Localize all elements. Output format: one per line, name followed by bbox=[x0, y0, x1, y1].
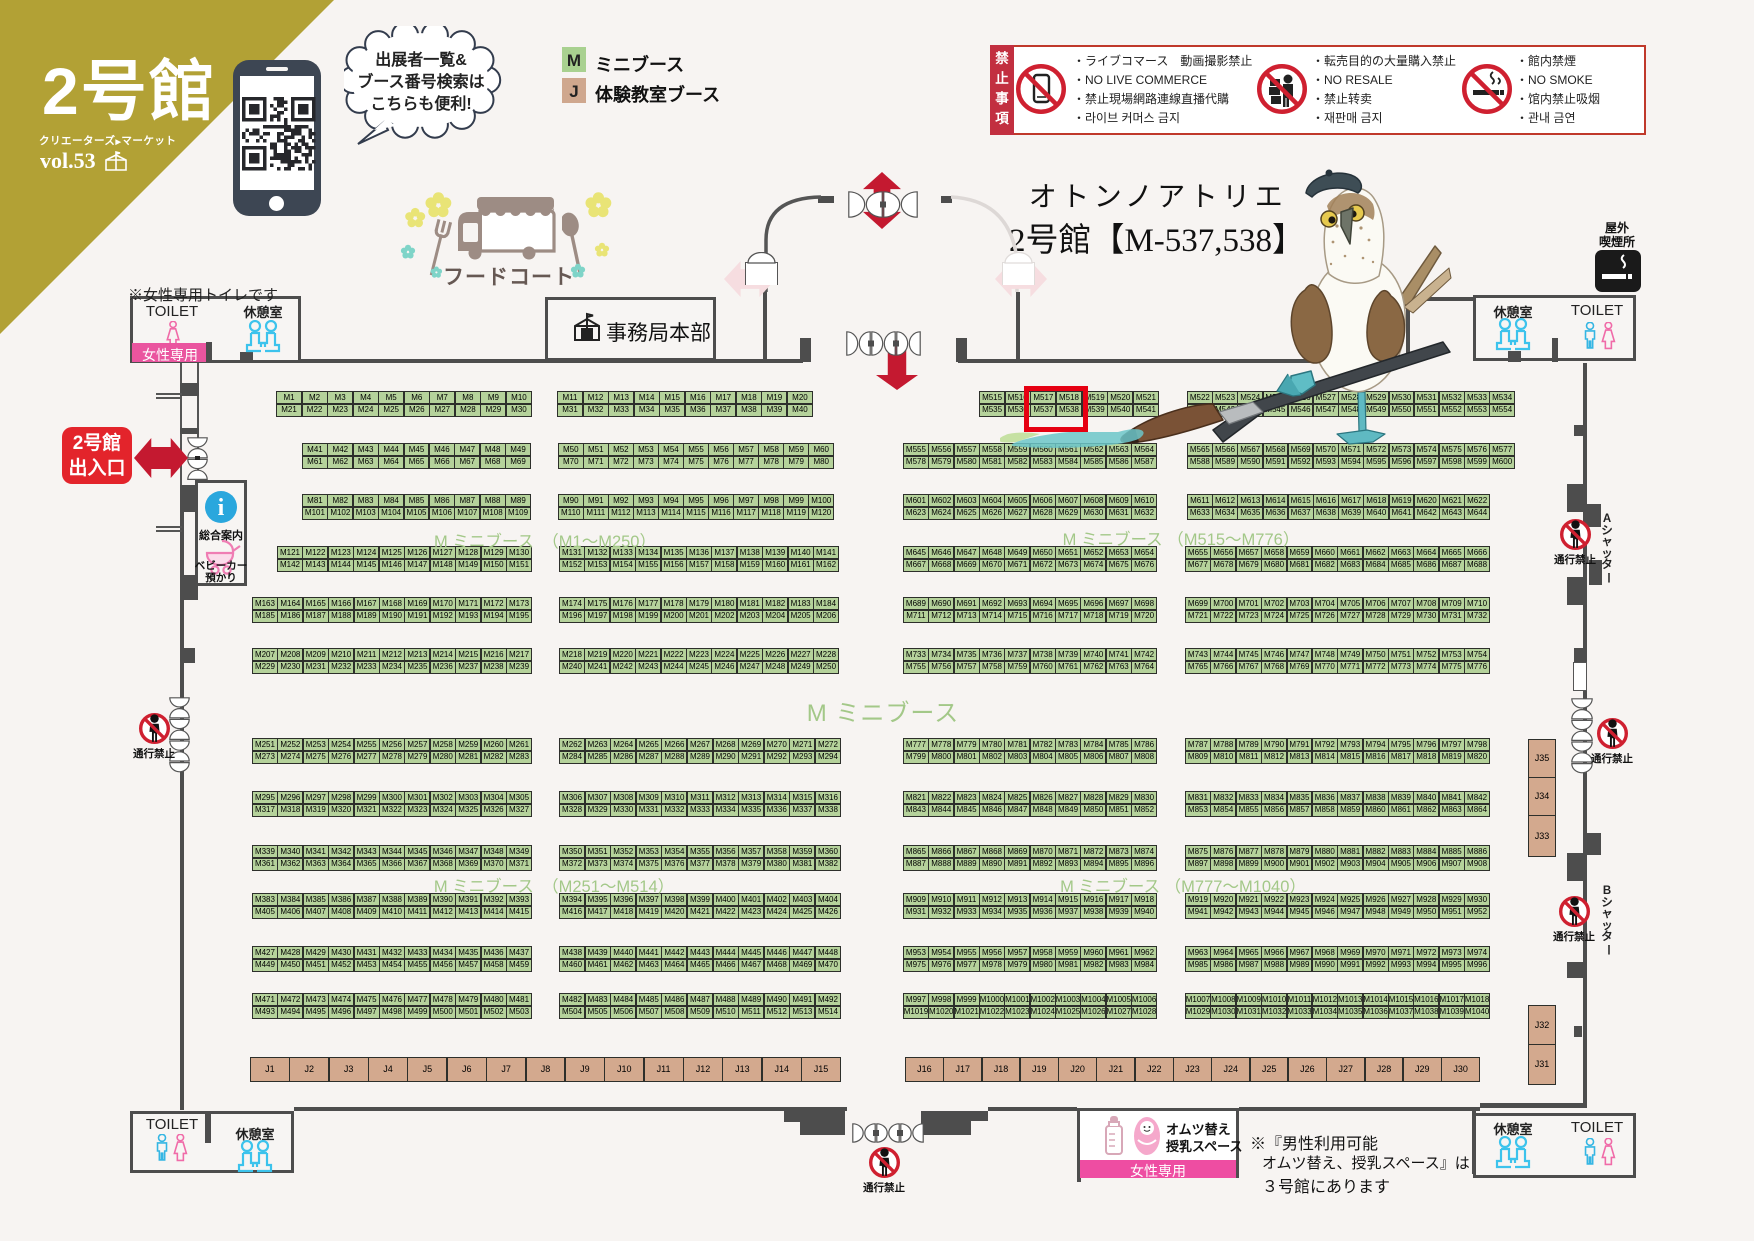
svg-text:i: i bbox=[218, 495, 225, 521]
